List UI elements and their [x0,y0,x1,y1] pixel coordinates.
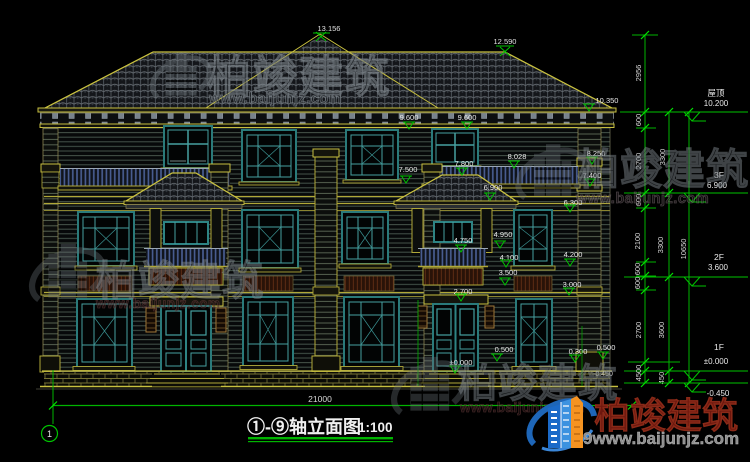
svg-text:www.baijunjz.com: www.baijunjz.com [95,296,221,311]
svg-text:4.950: 4.950 [494,230,513,239]
svg-text:0.500: 0.500 [597,343,616,352]
svg-text:10.350: 10.350 [596,96,619,105]
svg-text:3.600: 3.600 [708,263,729,272]
svg-text:2700: 2700 [634,322,643,339]
svg-text:2956: 2956 [634,65,643,82]
svg-text:600: 600 [633,277,642,290]
svg-text:屋顶: 屋顶 [707,88,725,98]
svg-text:12.590: 12.590 [494,37,517,46]
svg-text:6.900: 6.900 [484,183,503,192]
svg-text:9.600: 9.600 [400,113,419,122]
svg-text:450: 450 [657,372,666,385]
svg-text:3600: 3600 [657,322,666,339]
svg-text:0.500: 0.500 [495,345,514,354]
svg-text:10.200: 10.200 [704,99,729,108]
svg-text:①-⑨轴立面图: ①-⑨轴立面图 [247,416,361,437]
svg-text:4.200: 4.200 [564,250,583,259]
svg-text:1F: 1F [714,342,724,352]
svg-text:3300: 3300 [656,237,665,254]
svg-text:13.156: 13.156 [318,24,341,33]
svg-text:2F: 2F [714,252,724,262]
svg-text:9www.baijunjz.com: 9www.baijunjz.com [583,429,739,448]
svg-text:柏竣建筑: 柏竣建筑 [577,146,749,193]
svg-text:www.baijunjz.com: www.baijunjz.com [208,91,342,107]
svg-text:±0.000: ±0.000 [704,357,729,366]
svg-text:4500: 4500 [634,365,643,382]
svg-text:www.baijunjz.com: www.baijunjz.com [575,191,709,207]
svg-text:9.600: 9.600 [458,113,477,122]
svg-text:10650: 10650 [679,239,688,260]
svg-text:7.800: 7.800 [455,159,474,168]
svg-text:21000: 21000 [308,394,332,404]
svg-text:3.500: 3.500 [499,268,518,277]
svg-text:600: 600 [633,263,642,276]
svg-text:4.750: 4.750 [454,236,473,245]
svg-text:8.028: 8.028 [508,152,527,161]
svg-text:600: 600 [634,114,643,127]
svg-text:1:100: 1:100 [358,420,393,435]
svg-text:7.500: 7.500 [399,165,418,174]
svg-text:1: 1 [47,429,52,439]
svg-text:2100: 2100 [633,233,642,250]
